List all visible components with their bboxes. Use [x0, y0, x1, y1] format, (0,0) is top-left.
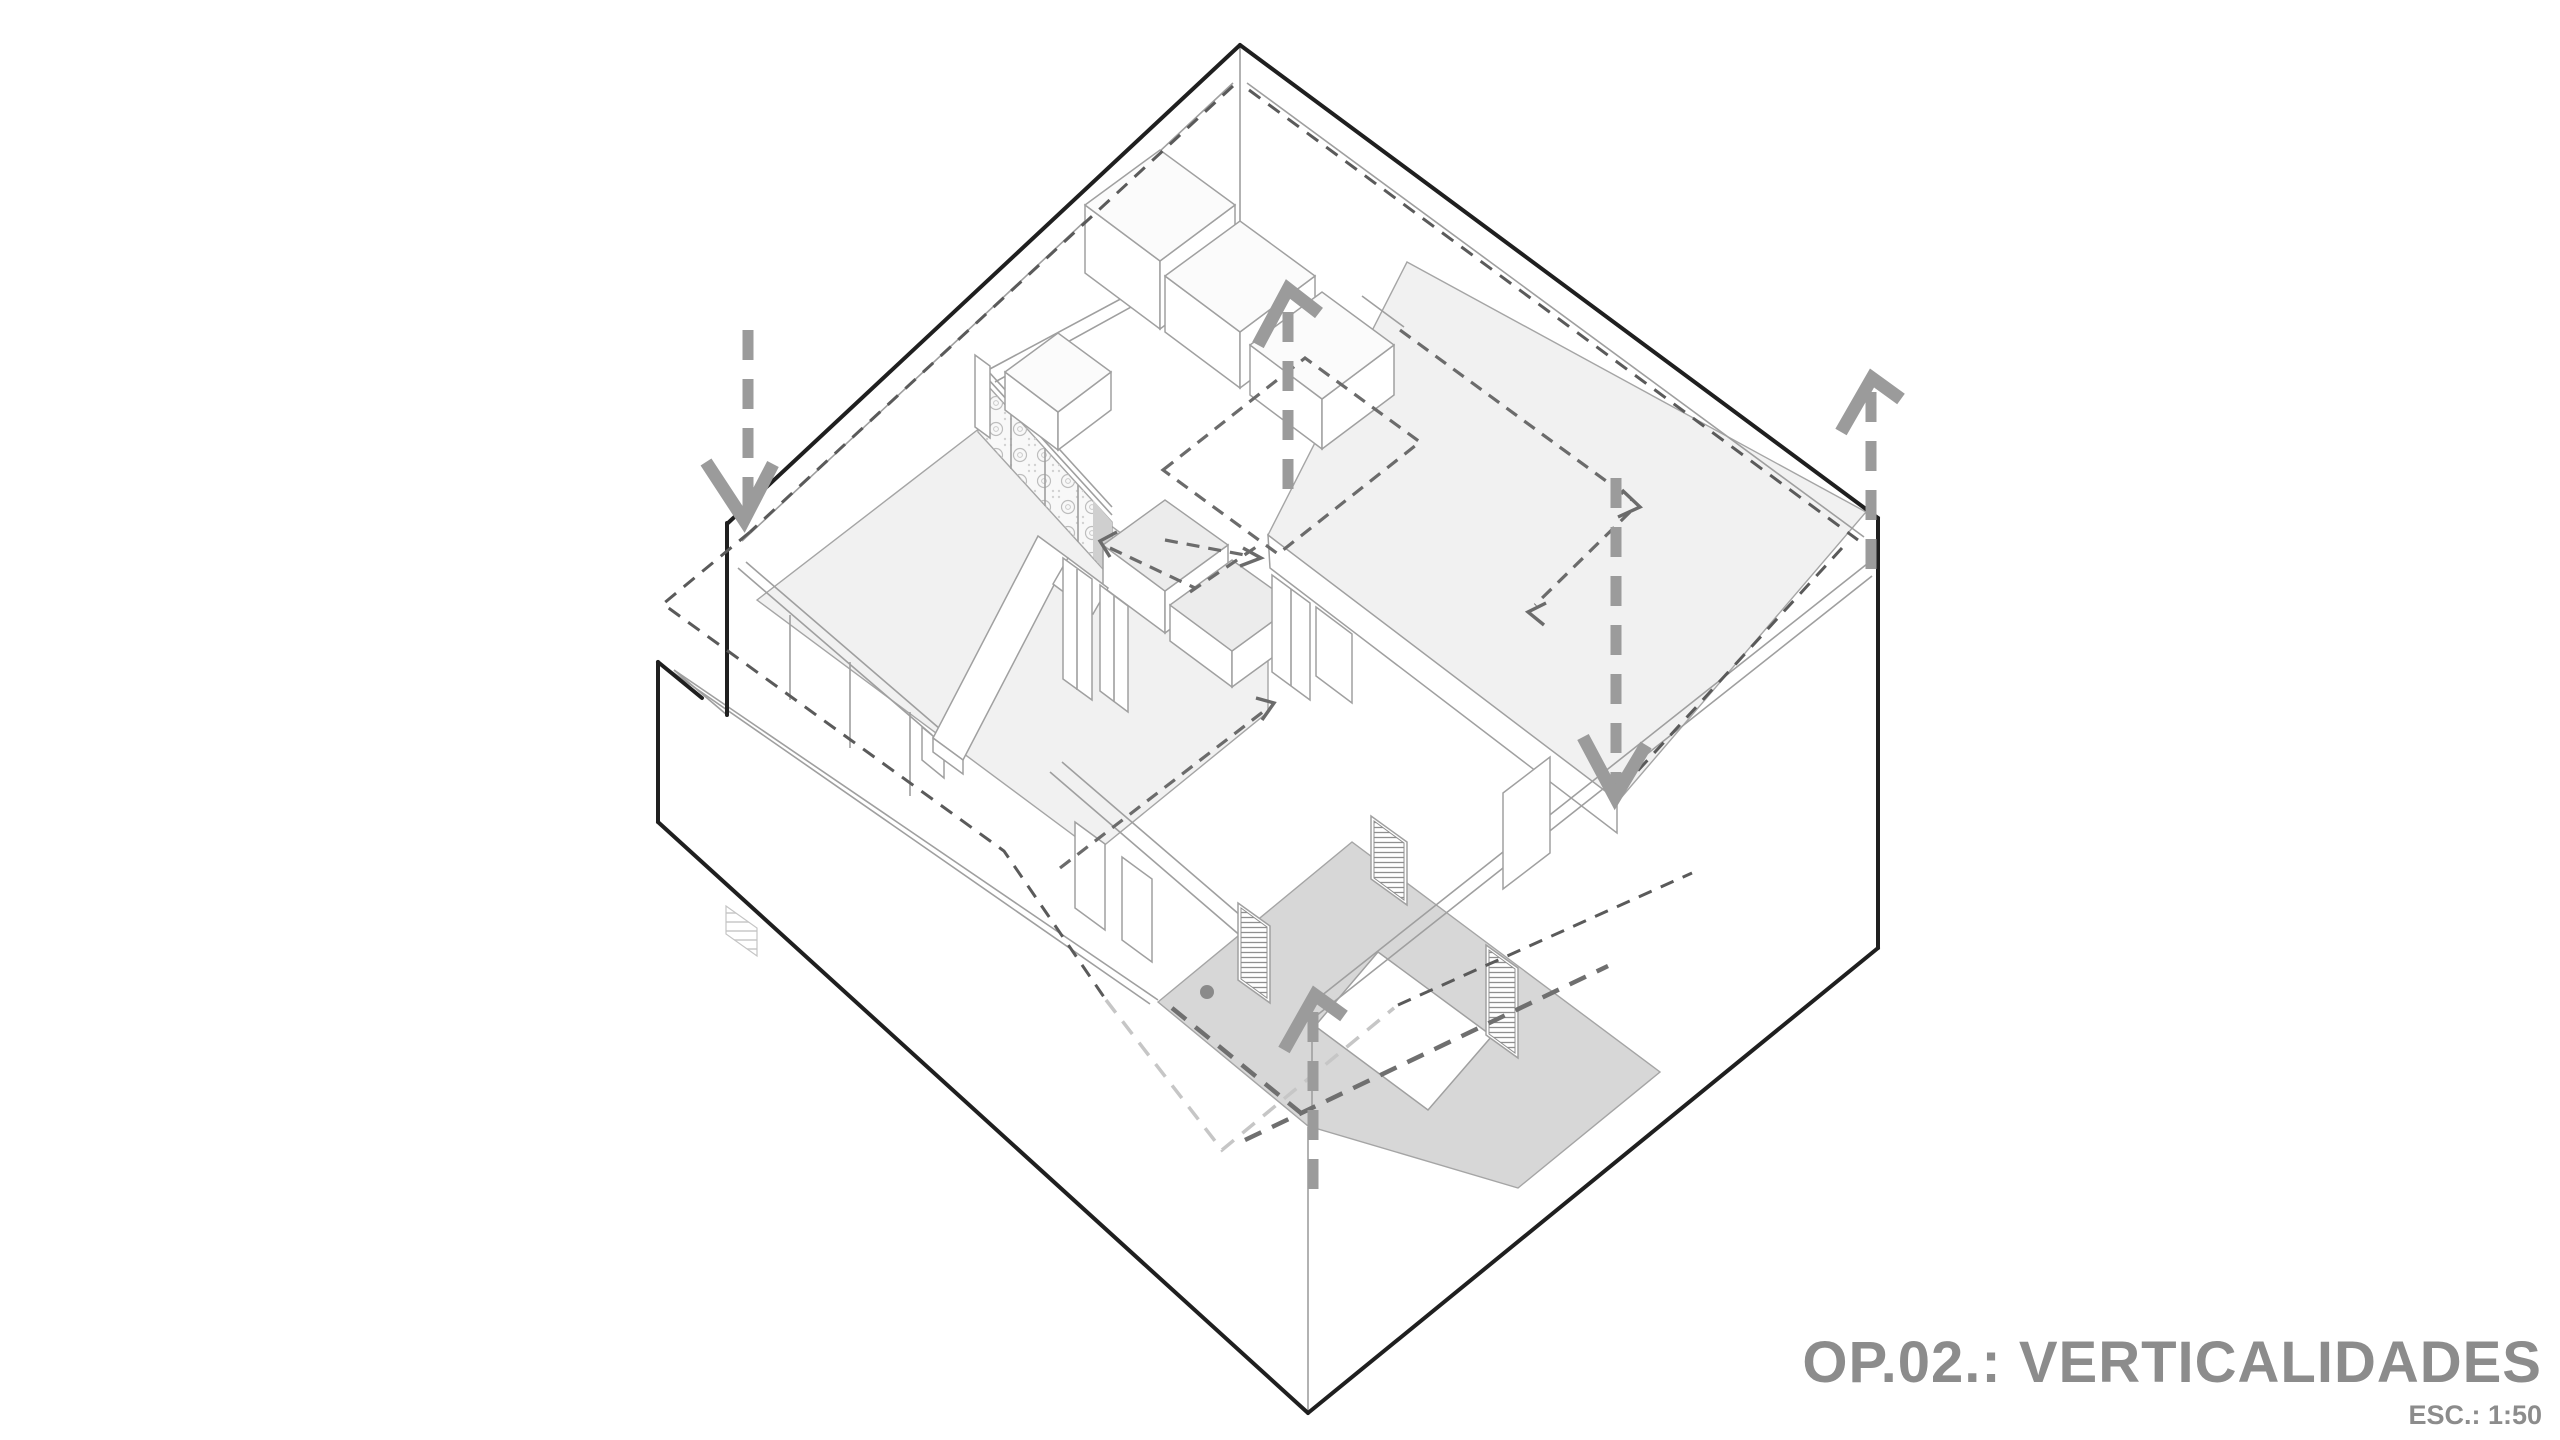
glass-block-post	[975, 355, 990, 438]
axonometric-drawing: OP.02.: VERTICALIDADES ESC.: 1:50	[0, 0, 2560, 1440]
arrow-down-upper-left	[706, 330, 773, 520]
se-wall-window	[1503, 757, 1550, 889]
sheet-title: OP.02.: VERTICALIDADES	[1802, 1330, 2542, 1395]
courtyard-door	[1122, 857, 1152, 962]
title-block: OP.02.: VERTICALIDADES ESC.: 1:50	[1802, 1330, 2542, 1430]
plan-dot-marker	[1200, 985, 1214, 999]
parapet-vent	[726, 906, 757, 956]
sheet-scale: ESC.: 1:50	[2408, 1400, 2542, 1430]
arrow-up-right	[1841, 378, 1901, 580]
drawing-sheet: OP.02.: VERTICALIDADES ESC.: 1:50	[0, 0, 2560, 1440]
parapet-top-edge	[658, 662, 702, 698]
